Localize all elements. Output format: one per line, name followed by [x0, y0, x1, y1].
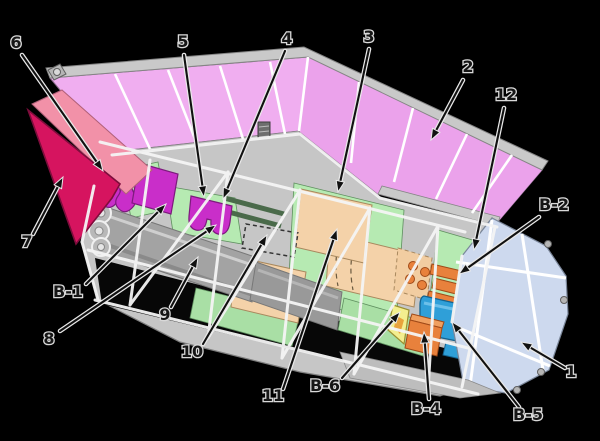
callout-label-B-1: B-1	[53, 282, 83, 301]
callout-label-B-4: B-4	[411, 399, 441, 418]
diagram-stage: 123456789101112B-1B-2B-4B-5B-6	[0, 0, 600, 441]
callout-label-11: 11	[262, 386, 284, 405]
callout-label-8: 8	[43, 329, 54, 348]
callout-label-B-5: B-5	[513, 405, 543, 424]
callout-7: 7	[21, 177, 63, 251]
callout-label-2: 2	[462, 57, 473, 76]
spacecraft-cutaway-diagram: 123456789101112B-1B-2B-4B-5B-6	[0, 0, 600, 441]
callout-label-4: 4	[281, 29, 292, 48]
callout-label-B-2: B-2	[539, 195, 569, 214]
callout-label-7: 7	[21, 232, 32, 251]
callout-label-1: 1	[565, 362, 576, 381]
callout-label-6: 6	[10, 33, 21, 52]
callout-label-9: 9	[159, 305, 170, 324]
callout-label-10: 10	[181, 342, 203, 361]
callout-label-B-6: B-6	[310, 376, 340, 395]
callout-arrow-shaft	[33, 187, 58, 234]
callout-label-12: 12	[495, 85, 517, 104]
callout-label-5: 5	[177, 32, 188, 51]
callout-label-3: 3	[363, 27, 374, 46]
